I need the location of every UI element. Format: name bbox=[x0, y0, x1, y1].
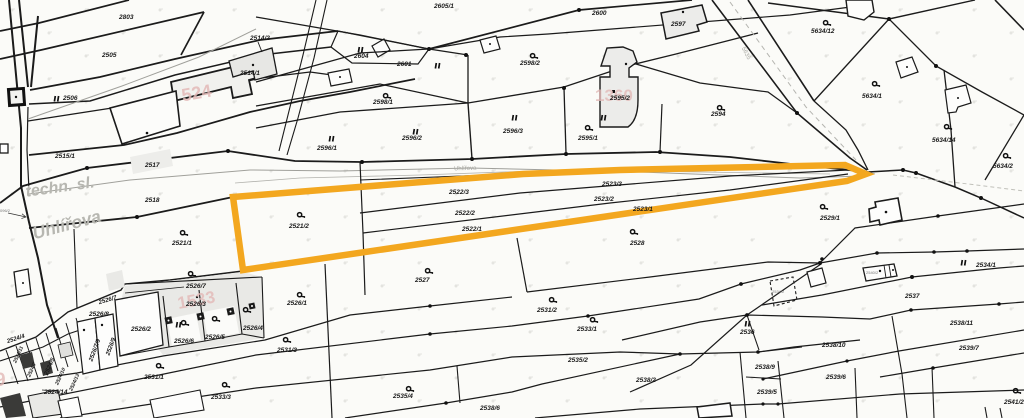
svg-text:5634/14: 5634/14 bbox=[932, 137, 956, 144]
svg-text:2535/4: 2535/4 bbox=[392, 393, 413, 400]
svg-text:2527: 2527 bbox=[414, 277, 430, 284]
svg-text:2601: 2601 bbox=[396, 61, 412, 68]
svg-text:9: 9 bbox=[0, 370, 6, 391]
svg-text:2535/2: 2535/2 bbox=[567, 357, 588, 364]
svg-text:2514/2: 2514/2 bbox=[249, 35, 270, 42]
svg-text:2523/3: 2523/3 bbox=[601, 181, 622, 188]
svg-text:2529/1: 2529/1 bbox=[819, 215, 840, 222]
svg-text:2534/2: 2534/2 bbox=[772, 289, 785, 294]
svg-text:2526/7: 2526/7 bbox=[185, 283, 206, 290]
svg-text:2526/3: 2526/3 bbox=[185, 301, 206, 308]
svg-text:2518: 2518 bbox=[144, 197, 160, 204]
svg-text:2521/1: 2521/1 bbox=[171, 240, 192, 247]
svg-text:2531/2: 2531/2 bbox=[536, 307, 557, 314]
svg-text:2600: 2600 bbox=[591, 10, 607, 17]
svg-text:2531/1: 2531/1 bbox=[143, 374, 164, 381]
svg-text:2594: 2594 bbox=[710, 111, 726, 118]
svg-text:2523/2: 2523/2 bbox=[593, 196, 614, 203]
svg-text:2514/1: 2514/1 bbox=[239, 70, 260, 77]
svg-text:2528: 2528 bbox=[629, 240, 645, 247]
svg-text:Uhlířova: Uhlířova bbox=[454, 166, 477, 173]
svg-text:2596/3: 2596/3 bbox=[502, 128, 523, 135]
svg-text:2540/2: 2540/2 bbox=[866, 270, 879, 275]
svg-text:2598/2: 2598/2 bbox=[519, 60, 540, 67]
svg-text:2526/8: 2526/8 bbox=[88, 311, 109, 318]
svg-text:2536: 2536 bbox=[739, 329, 755, 336]
svg-text:2596/1: 2596/1 bbox=[316, 145, 337, 152]
svg-text:2539/7: 2539/7 bbox=[958, 345, 979, 352]
svg-text:2596/2: 2596/2 bbox=[401, 135, 422, 142]
svg-text:2604: 2604 bbox=[353, 53, 369, 60]
svg-text:2533/3: 2533/3 bbox=[210, 394, 231, 401]
svg-text:2522/2: 2522/2 bbox=[454, 210, 475, 217]
svg-text:2522/3: 2522/3 bbox=[448, 189, 469, 196]
svg-text:2538/9: 2538/9 bbox=[754, 364, 775, 371]
svg-text:2515/1: 2515/1 bbox=[54, 153, 75, 160]
svg-text:2539/6: 2539/6 bbox=[825, 374, 846, 381]
svg-text:2534/1: 2534/1 bbox=[975, 262, 996, 269]
svg-text:2506: 2506 bbox=[62, 95, 78, 102]
svg-text:2595/1: 2595/1 bbox=[577, 135, 598, 142]
svg-text:2526/5: 2526/5 bbox=[204, 334, 225, 341]
svg-text:2524/14: 2524/14 bbox=[43, 389, 68, 396]
svg-text:2526/4: 2526/4 bbox=[242, 325, 263, 332]
svg-text:2521/2: 2521/2 bbox=[288, 223, 309, 230]
svg-text:5634/2: 5634/2 bbox=[993, 163, 1013, 170]
svg-text:2541/2: 2541/2 bbox=[1003, 399, 1024, 406]
svg-text:2538/11: 2538/11 bbox=[949, 320, 973, 327]
svg-text:2522/1: 2522/1 bbox=[461, 226, 482, 233]
svg-text:2539/5: 2539/5 bbox=[756, 389, 777, 396]
svg-text:2505: 2505 bbox=[101, 52, 117, 59]
svg-text:096/2: 096/2 bbox=[0, 208, 11, 213]
svg-text:2526/6: 2526/6 bbox=[173, 338, 194, 345]
svg-text:2537: 2537 bbox=[904, 293, 920, 300]
svg-text:2523/1: 2523/1 bbox=[632, 206, 653, 213]
svg-text:2598/1: 2598/1 bbox=[372, 99, 393, 106]
svg-text:2517: 2517 bbox=[144, 162, 160, 169]
svg-text:2531/3: 2531/3 bbox=[276, 347, 297, 354]
svg-text:5634/1: 5634/1 bbox=[862, 93, 882, 100]
svg-text:5634/12: 5634/12 bbox=[811, 28, 835, 35]
svg-text:2803: 2803 bbox=[118, 14, 134, 21]
svg-text:2597: 2597 bbox=[670, 21, 686, 28]
svg-text:2533/1: 2533/1 bbox=[576, 326, 597, 333]
svg-text:2538/2: 2538/2 bbox=[635, 377, 656, 384]
svg-text:2526/1: 2526/1 bbox=[286, 300, 307, 307]
svg-text:2538/6: 2538/6 bbox=[479, 405, 500, 412]
svg-text:2526/2: 2526/2 bbox=[130, 326, 151, 333]
svg-text:2605/1: 2605/1 bbox=[433, 3, 454, 10]
svg-text:2538/10: 2538/10 bbox=[821, 342, 846, 349]
svg-text:2595/2: 2595/2 bbox=[609, 95, 630, 102]
